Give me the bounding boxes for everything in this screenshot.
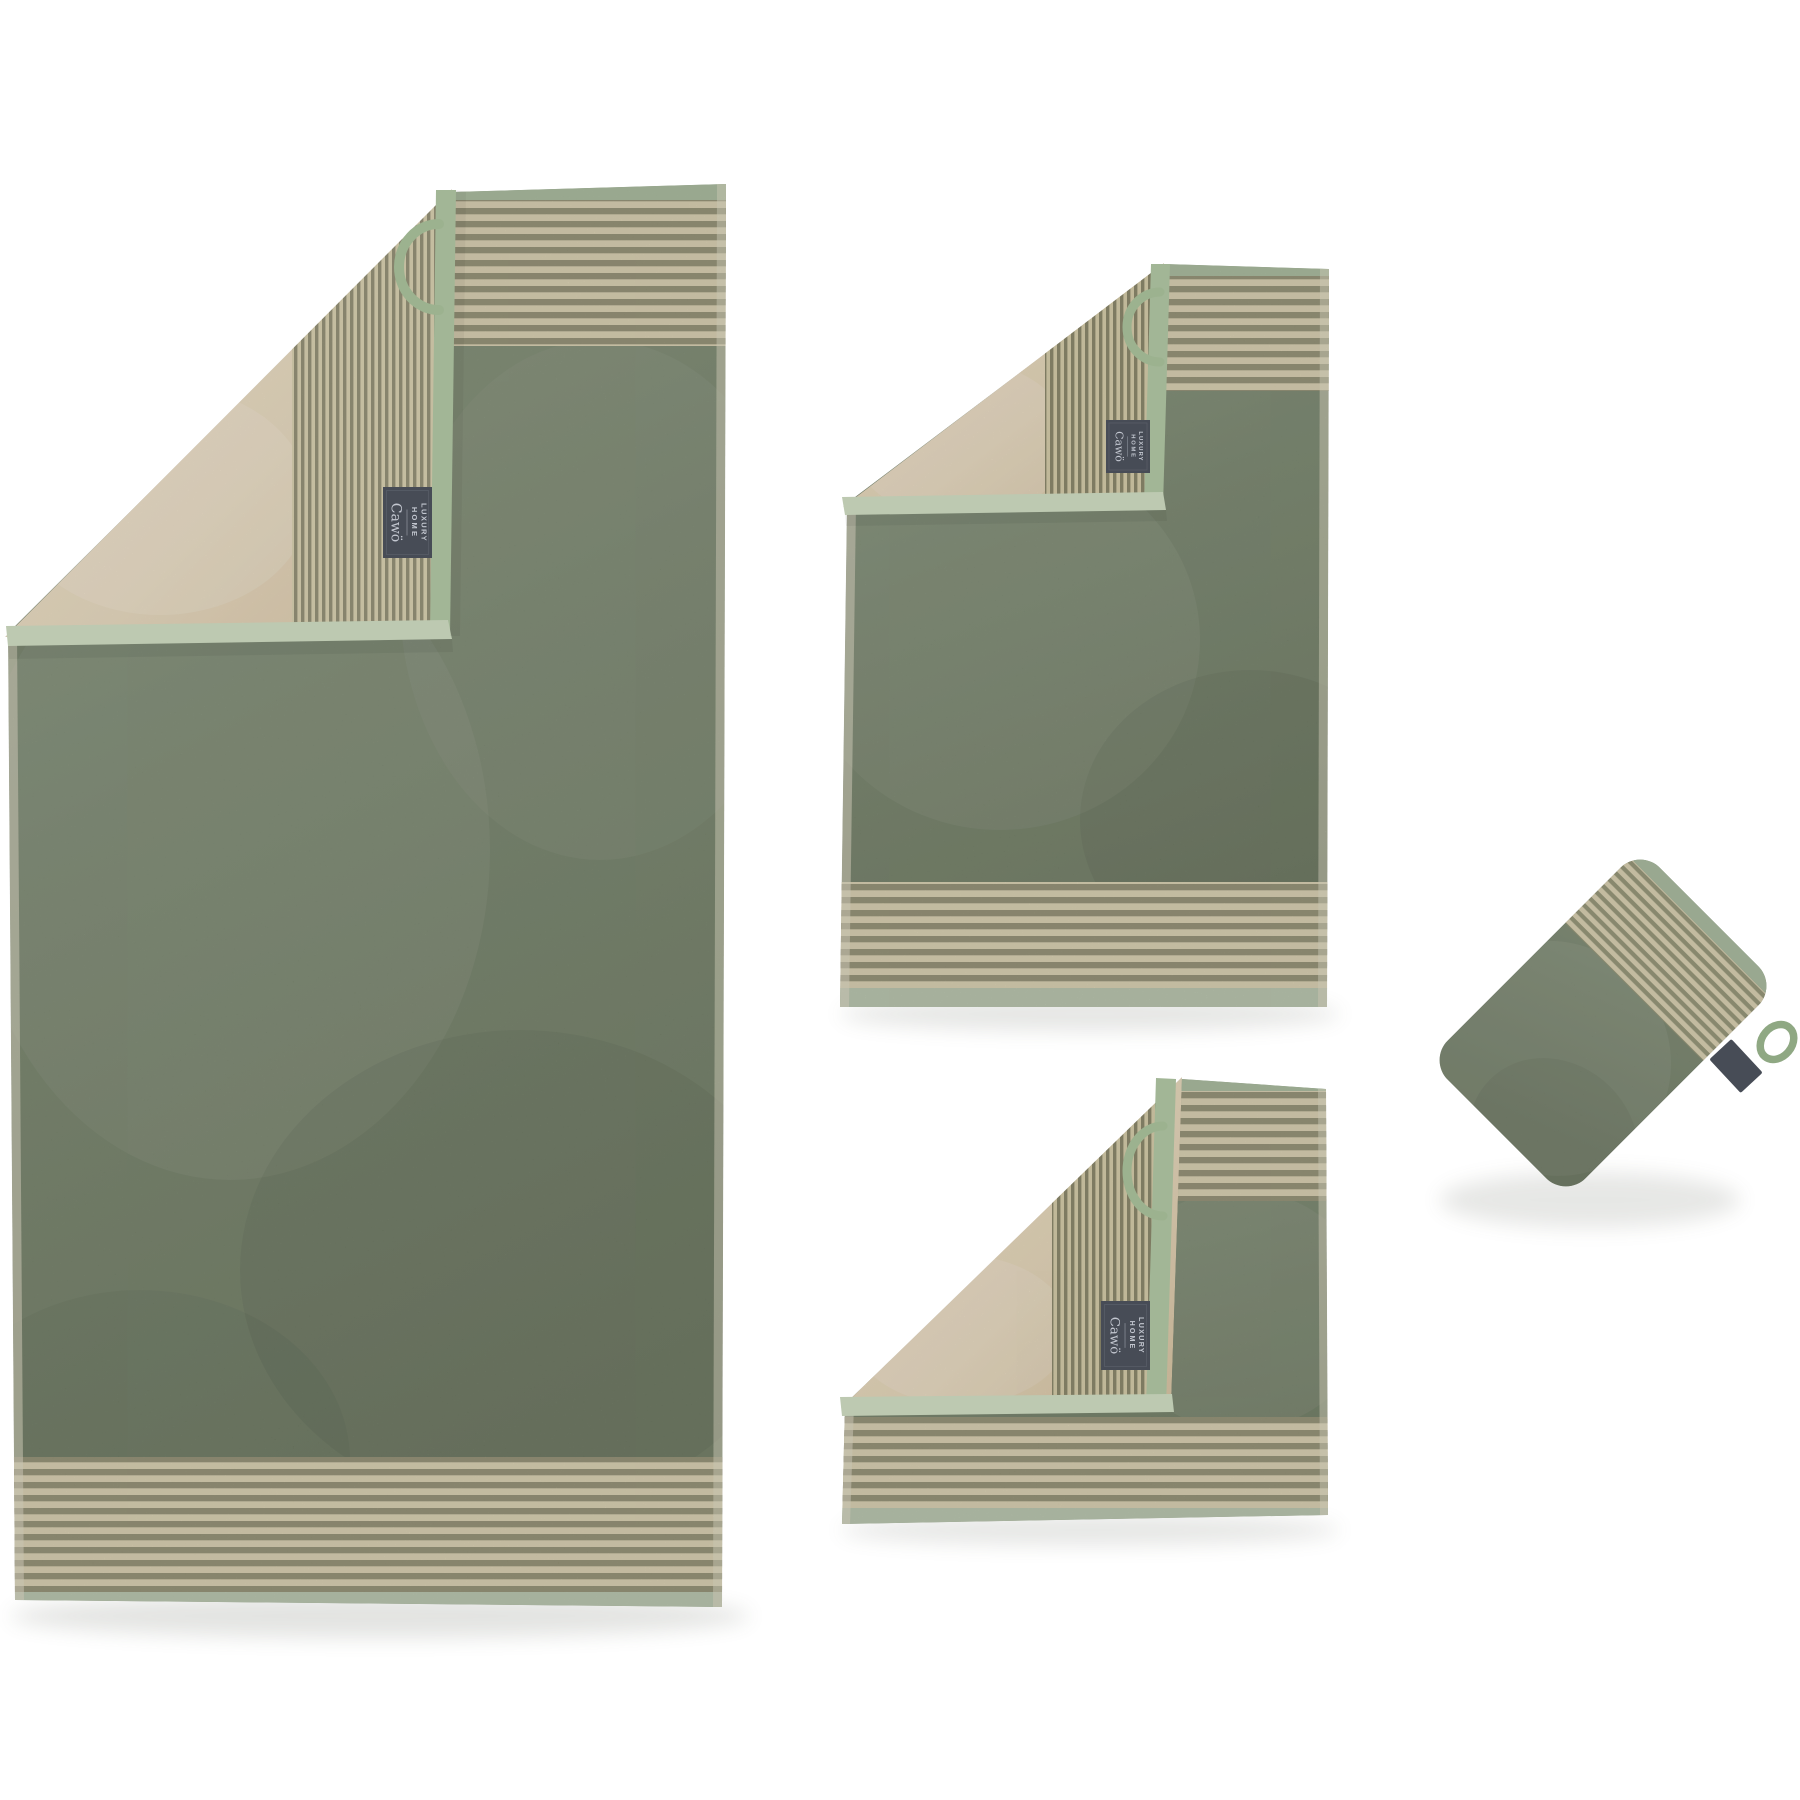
svg-text:Cawö: Cawö bbox=[1113, 431, 1126, 462]
bath-towel: LUXURY HOME Cawö bbox=[0, 170, 800, 1630]
label-text-brand: Cawö bbox=[388, 503, 404, 542]
wash-mitt-hanging-loop bbox=[1753, 1018, 1800, 1066]
towel-set-photo: LUXURY HOME Cawö bbox=[0, 0, 1800, 1800]
svg-text:HOME: HOME bbox=[1130, 434, 1136, 458]
hand-towel-brand-label: LUXURY HOME Cawö bbox=[1106, 420, 1150, 473]
washcloth: LUXURY HOME Cawö bbox=[835, 1070, 1370, 1530]
hand-towel: LUXURY HOME Cawö bbox=[800, 258, 1420, 1013]
svg-text:LUXURY: LUXURY bbox=[1137, 1317, 1145, 1354]
svg-text:HOME: HOME bbox=[1128, 1321, 1136, 1351]
wash-mitt-shadow bbox=[1440, 1172, 1740, 1228]
wash-mitt-brand-label bbox=[1709, 1039, 1762, 1093]
svg-text:LUXURY: LUXURY bbox=[1137, 431, 1143, 461]
label-text-line1: LUXURY bbox=[420, 503, 429, 542]
bath-towel-brand-label: LUXURY HOME Cawö bbox=[383, 487, 432, 558]
washcloth-brand-label: LUXURY HOME Cawö bbox=[1101, 1301, 1150, 1370]
svg-text:Cawö: Cawö bbox=[1106, 1317, 1121, 1355]
towel-set-scene: LUXURY HOME Cawö bbox=[0, 0, 1800, 1800]
label-text-line2: HOME bbox=[410, 507, 419, 538]
